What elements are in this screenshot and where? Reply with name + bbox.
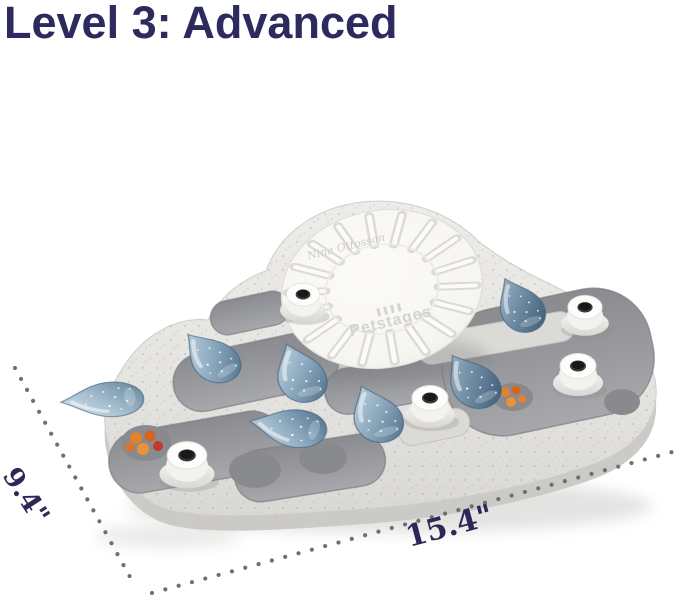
product-photo: Nina Ottosson Petstages	[0, 0, 679, 597]
product-listing-image: Level 3: Advanced	[0, 0, 679, 597]
